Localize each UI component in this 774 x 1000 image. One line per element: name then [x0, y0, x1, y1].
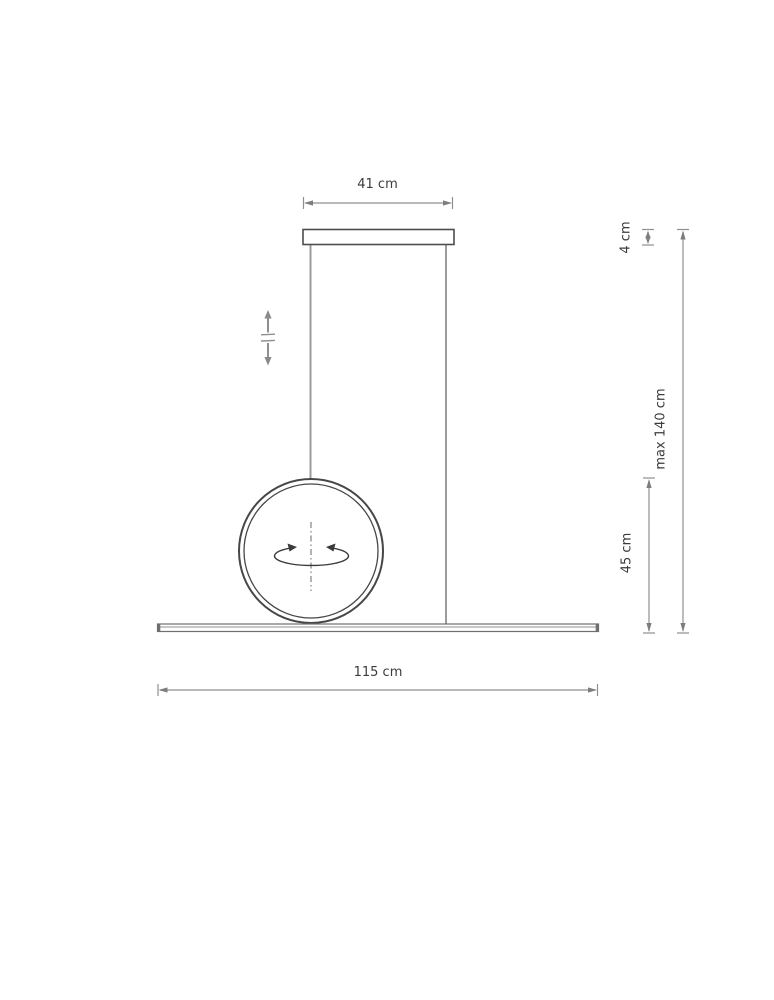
dimension-bar-length: 115 cm [158, 665, 598, 696]
arrowhead-up [680, 231, 685, 240]
dimension-label-canopy-width: 41 cm [357, 177, 398, 192]
dimension-canopy-height: 4 cm [619, 221, 655, 253]
arrowhead-right [588, 687, 597, 692]
dimension-label-bar-length: 115 cm [354, 665, 403, 680]
height-adjust-arrows-icon [261, 310, 275, 366]
arrowhead-up [646, 479, 651, 488]
arrowhead-left [304, 200, 313, 205]
adjust-tick-top [261, 334, 275, 335]
bar-endcap-right [596, 624, 599, 632]
ceiling-canopy [303, 230, 454, 245]
dimension-label-ring-size: 45 cm [620, 533, 635, 574]
horizontal-bar [158, 624, 599, 632]
dimension-label-max-height: max 140 cm [654, 388, 669, 469]
arrowhead-left [159, 687, 168, 692]
dimension-label-canopy-height: 4 cm [619, 221, 634, 253]
pendant-lamp-fixture [158, 230, 599, 632]
dimension-ring-size: 45 cm [620, 478, 656, 633]
arrowhead-right [443, 200, 452, 205]
arrowhead-down [645, 236, 650, 244]
arrowhead-down [680, 623, 685, 632]
dimension-max-height: max 140 cm [654, 230, 690, 634]
bar-body [158, 624, 599, 632]
arrowhead-down [646, 623, 651, 632]
bar-endcap-left [158, 624, 161, 632]
down-arrowhead [264, 357, 271, 366]
lamp-dimension-diagram: 41 cm 4 cm max 140 cm 45 cm [0, 0, 774, 1000]
technical-drawing-canvas: 41 cm 4 cm max 140 cm 45 cm [0, 0, 774, 1000]
dimension-canopy-width: 41 cm [304, 177, 453, 209]
adjust-tick-bottom [261, 340, 275, 341]
